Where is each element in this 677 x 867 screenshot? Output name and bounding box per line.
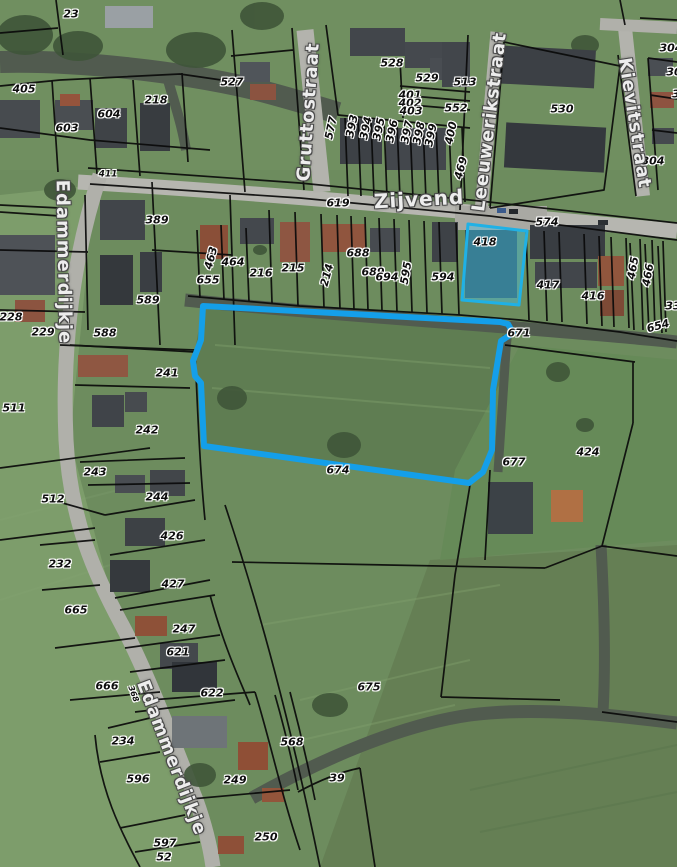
highlighted-building-parcel[interactable]: [462, 224, 527, 305]
map-canvas[interactable]: 2340560360421852752852951340140240355253…: [0, 0, 677, 867]
canal-vertical-right: [601, 545, 604, 712]
aerial-basemap: [0, 0, 677, 867]
